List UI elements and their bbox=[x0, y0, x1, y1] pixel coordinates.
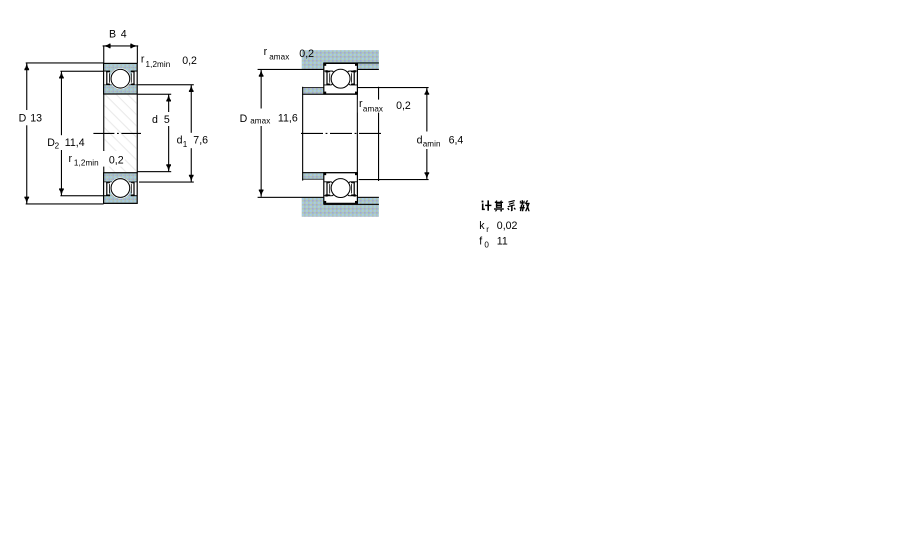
svg-text:r: r bbox=[69, 153, 73, 165]
svg-text:6,4: 6,4 bbox=[449, 134, 464, 146]
svg-text:0,2: 0,2 bbox=[299, 48, 314, 60]
svg-text:0: 0 bbox=[484, 240, 489, 249]
svg-text:amax: amax bbox=[363, 105, 383, 114]
svg-text:1,2min: 1,2min bbox=[74, 159, 99, 168]
svg-text:7,6: 7,6 bbox=[193, 134, 208, 146]
svg-text:11,6: 11,6 bbox=[278, 112, 298, 124]
svg-text:0,2: 0,2 bbox=[109, 154, 124, 166]
svg-text:k: k bbox=[479, 220, 485, 232]
svg-text:B: B bbox=[109, 28, 116, 40]
svg-text:amin: amin bbox=[423, 139, 441, 148]
svg-text:11,4: 11,4 bbox=[65, 137, 85, 149]
svg-text:r: r bbox=[264, 46, 268, 58]
svg-text:1,2min: 1,2min bbox=[146, 60, 171, 69]
svg-text:4: 4 bbox=[121, 28, 127, 40]
svg-text:D: D bbox=[19, 112, 27, 124]
svg-text:0,2: 0,2 bbox=[182, 55, 197, 67]
svg-text:13: 13 bbox=[30, 112, 42, 124]
svg-text:amax: amax bbox=[250, 117, 270, 126]
svg-text:r: r bbox=[486, 225, 489, 234]
svg-text:0,2: 0,2 bbox=[396, 100, 411, 112]
svg-text:d: d bbox=[417, 134, 423, 146]
svg-text:d: d bbox=[152, 114, 158, 126]
svg-text:f: f bbox=[479, 235, 482, 247]
svg-text:D: D bbox=[240, 113, 248, 125]
svg-text:5: 5 bbox=[164, 114, 170, 126]
svg-text:11: 11 bbox=[497, 235, 508, 247]
svg-text:0,02: 0,02 bbox=[497, 220, 518, 232]
svg-text:r: r bbox=[141, 53, 145, 65]
svg-text:1: 1 bbox=[183, 140, 188, 149]
svg-text:2: 2 bbox=[55, 142, 60, 151]
svg-text:amax: amax bbox=[269, 53, 289, 62]
svg-text:d: d bbox=[177, 134, 183, 146]
